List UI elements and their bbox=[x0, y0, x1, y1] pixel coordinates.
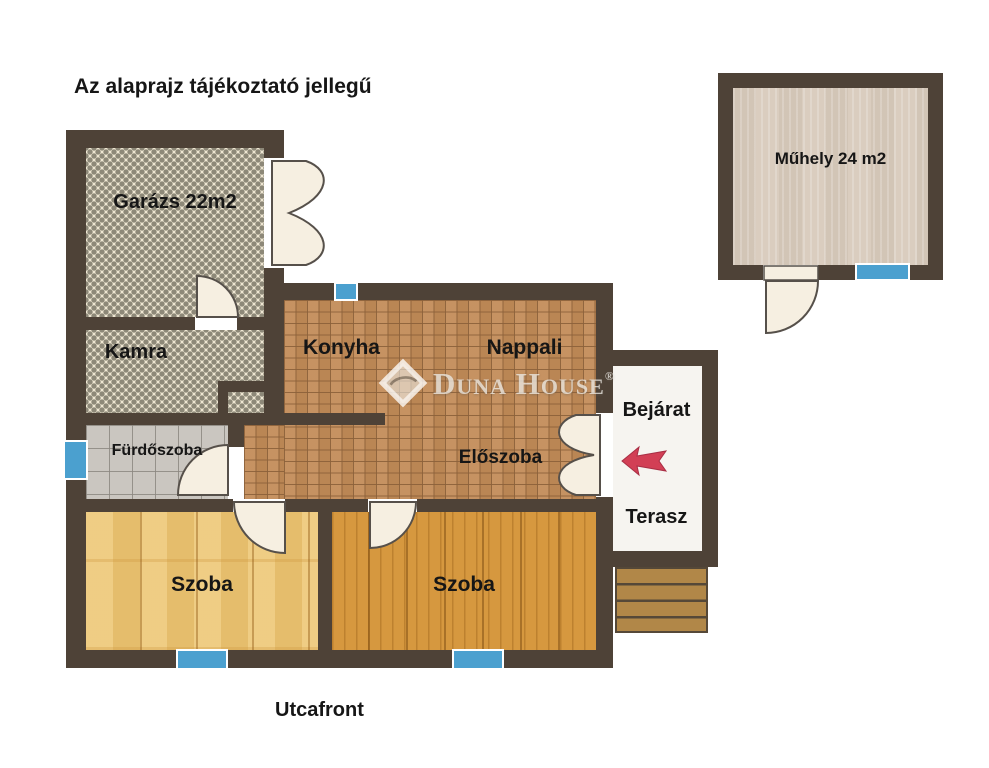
wall-segment bbox=[818, 265, 856, 280]
wall-segment bbox=[264, 130, 284, 158]
wall-segment bbox=[66, 317, 195, 330]
wall-segment bbox=[285, 499, 368, 512]
room-garage-label: Garázs 22m2 bbox=[86, 191, 264, 214]
window bbox=[63, 440, 88, 480]
room-left-bedroom-label: Szoba bbox=[86, 573, 318, 597]
room-bathroom-floor bbox=[86, 425, 228, 499]
room-hallway-floor bbox=[244, 425, 284, 499]
wall-segment bbox=[228, 650, 452, 668]
wall-segment bbox=[66, 650, 176, 668]
wall-segment bbox=[318, 512, 332, 650]
wall-segment bbox=[218, 381, 228, 413]
terrace-steps bbox=[615, 567, 708, 633]
window bbox=[855, 263, 910, 281]
wall-segment bbox=[718, 73, 733, 280]
room-living-label: Nappali bbox=[452, 336, 597, 360]
wall-segment bbox=[228, 425, 244, 447]
wall-segment bbox=[417, 499, 613, 512]
wall-segment bbox=[613, 551, 718, 567]
room-bathroom-label: Fürdőszoba bbox=[86, 442, 228, 460]
wall-segment bbox=[910, 265, 928, 280]
wall-segment bbox=[504, 650, 613, 668]
wall-segment bbox=[66, 130, 284, 148]
wall-segment bbox=[733, 265, 763, 280]
floor-plan: Az alaprajz tájékoztató jellegű Garázs 2… bbox=[0, 0, 989, 768]
room-hallway-label: Előszoba bbox=[428, 447, 573, 469]
wall-segment bbox=[358, 283, 613, 300]
room-right-bedroom-label: Szoba bbox=[332, 573, 596, 597]
watermark: Duna House® bbox=[378, 358, 615, 408]
page-title: Az alaprajz tájékoztató jellegű bbox=[74, 75, 372, 99]
entrance-arrow-icon bbox=[620, 444, 668, 478]
watermark-logo-icon bbox=[378, 358, 428, 408]
wall-segment bbox=[66, 130, 86, 668]
wall-segment bbox=[702, 350, 718, 567]
double-door-icon bbox=[272, 161, 324, 265]
window bbox=[334, 282, 358, 301]
wall-segment bbox=[66, 499, 233, 512]
terrace-label: Terasz bbox=[611, 506, 702, 529]
workshop-label: Műhely 24 m2 bbox=[733, 149, 928, 169]
watermark-brand: Duna House® bbox=[433, 368, 615, 399]
registered-mark: ® bbox=[605, 369, 615, 383]
wall-segment bbox=[66, 413, 385, 425]
room-kitchen-label: Konyha bbox=[284, 336, 399, 360]
entrance-label: Bejárat bbox=[611, 399, 702, 422]
wall-segment bbox=[237, 317, 284, 330]
window bbox=[452, 649, 504, 670]
wall-segment bbox=[928, 73, 943, 280]
window bbox=[176, 649, 228, 670]
wall-segment bbox=[264, 330, 284, 413]
wall-segment bbox=[718, 73, 943, 88]
door-icon bbox=[764, 266, 818, 280]
room-garage-floor bbox=[86, 148, 264, 317]
wall-segment bbox=[264, 283, 334, 300]
workshop-floor bbox=[733, 88, 928, 265]
room-pantry-label: Kamra bbox=[86, 341, 186, 364]
street-front-label: Utcafront bbox=[275, 699, 364, 722]
door-icon bbox=[766, 281, 818, 333]
